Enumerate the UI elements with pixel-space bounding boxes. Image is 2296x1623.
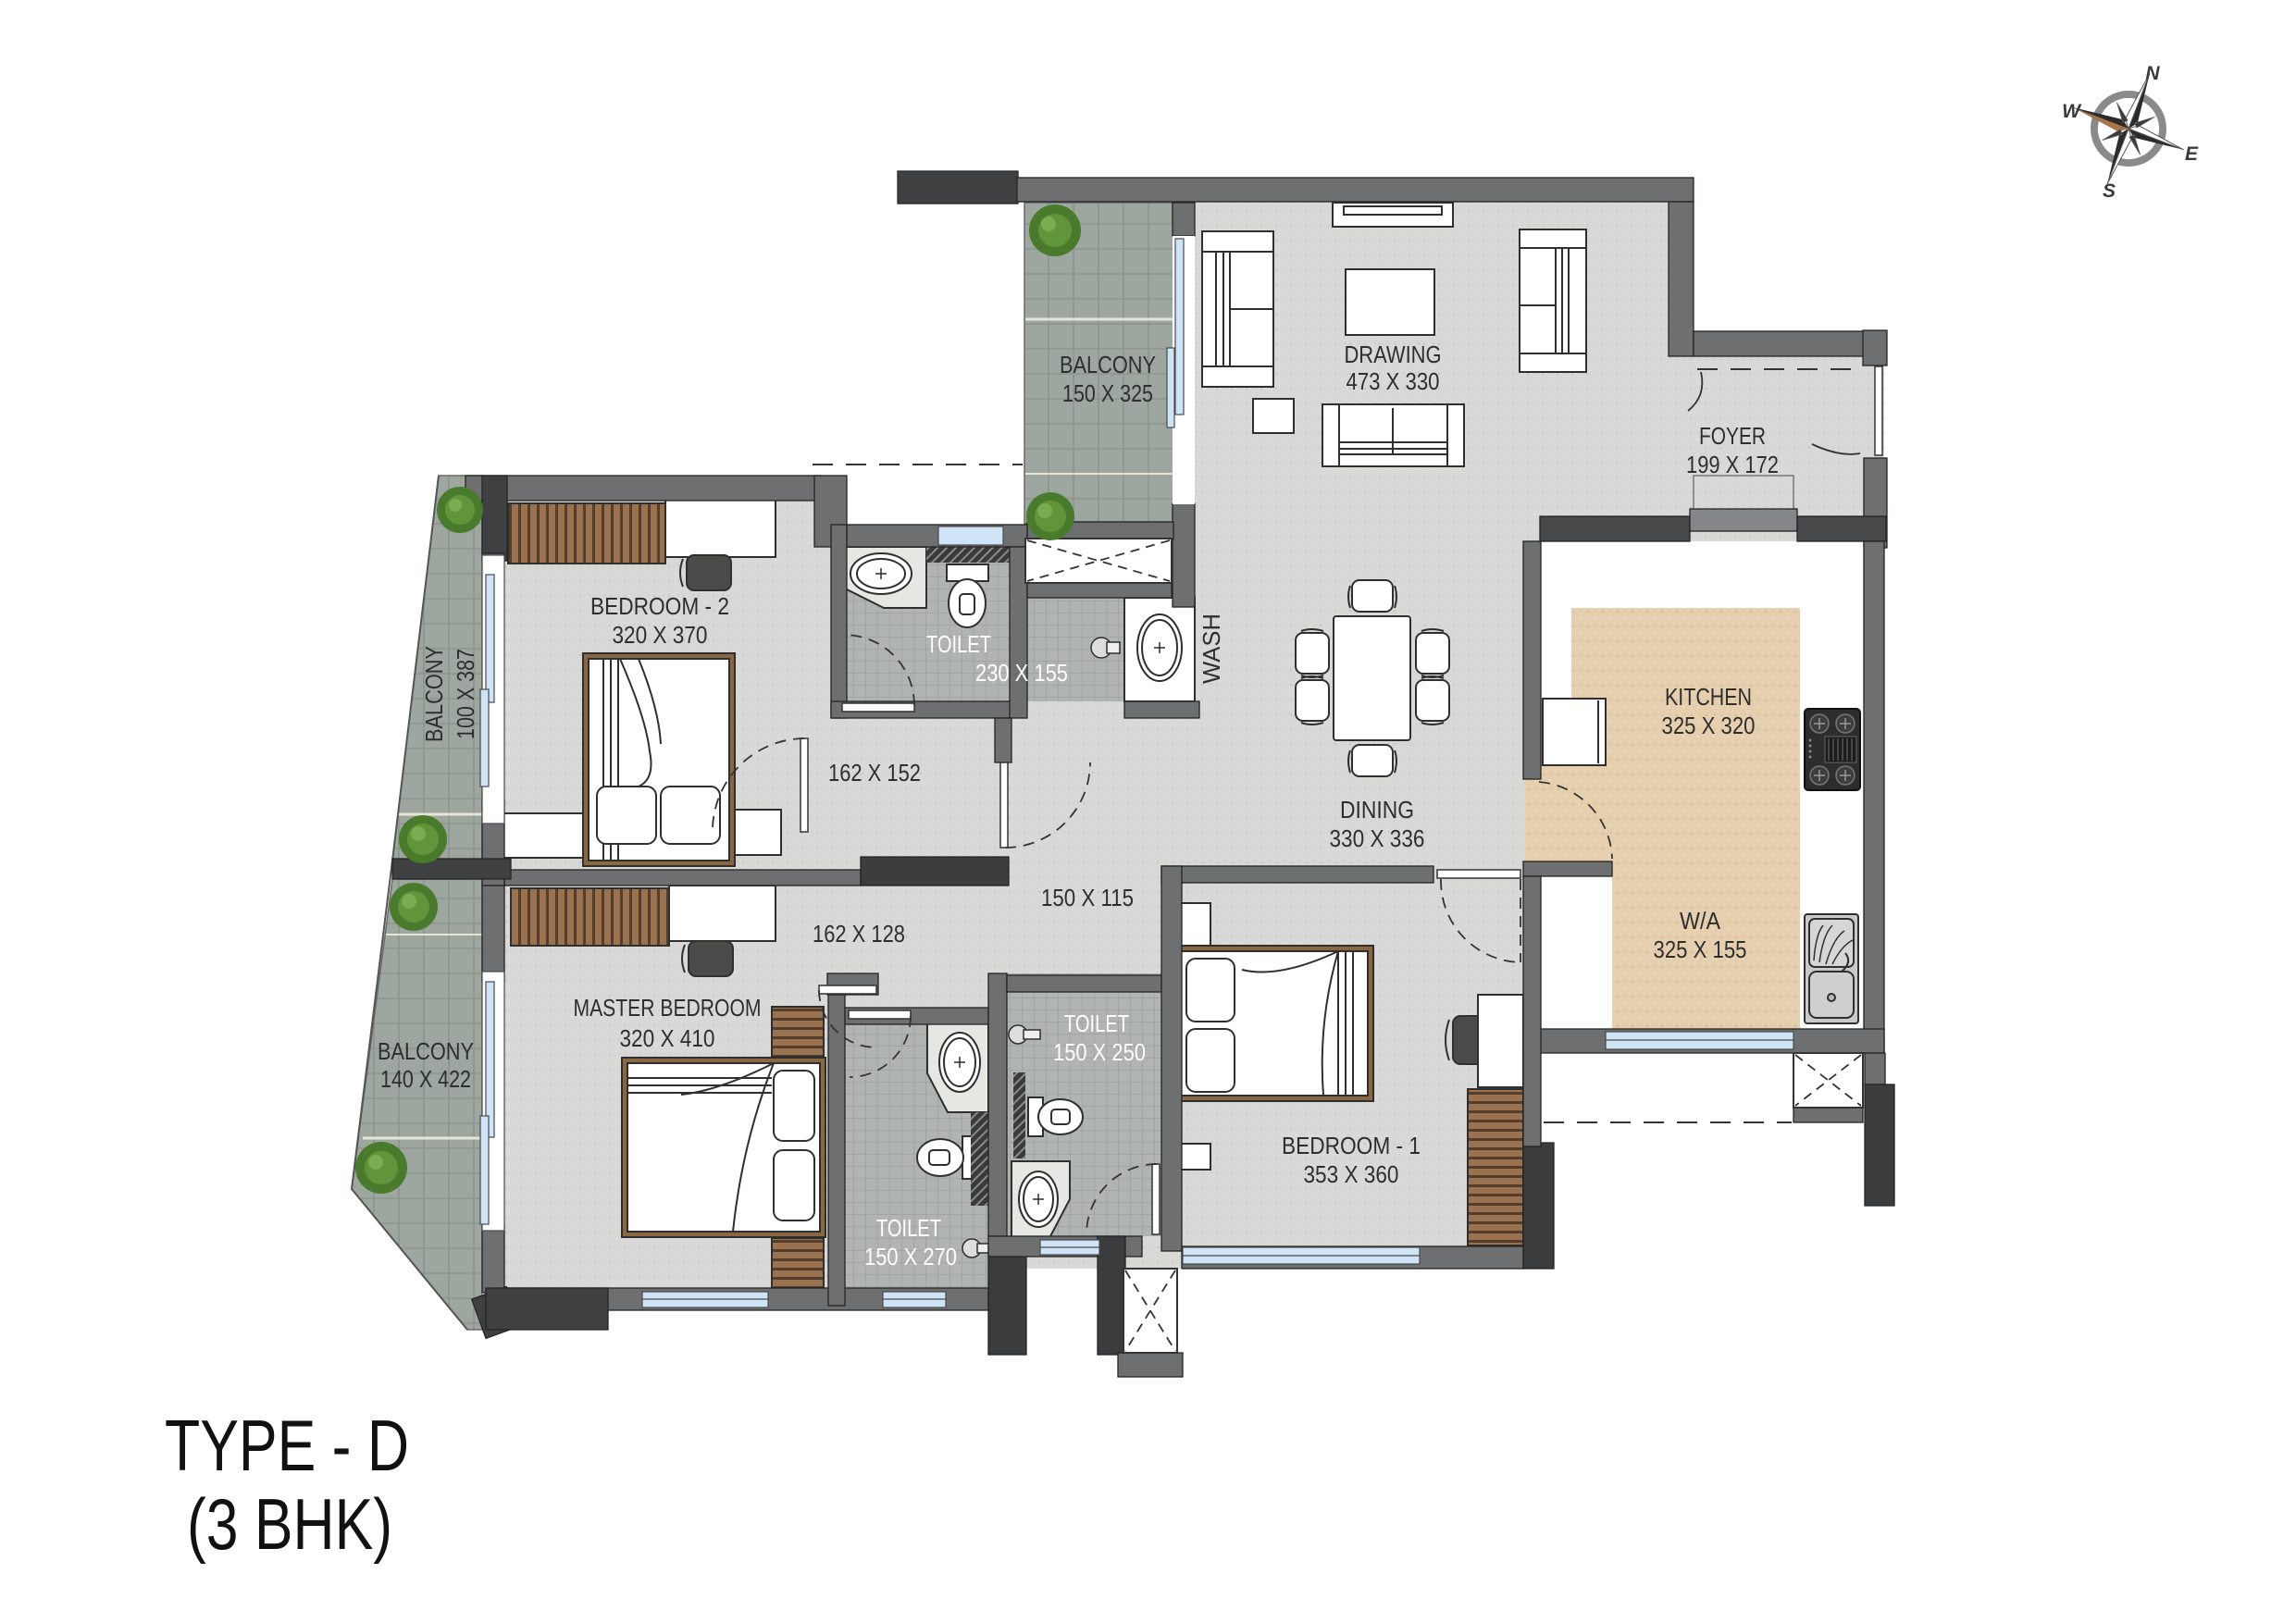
svg-text:473 X 330: 473 X 330 [1347,367,1440,395]
svg-text:TYPE - D: TYPE - D [165,1405,409,1486]
svg-text:BALCONY: BALCONY [1060,351,1156,378]
svg-text:325 X 155: 325 X 155 [1654,935,1747,963]
svg-text:W: W [2062,101,2082,122]
svg-text:BALCONY: BALCONY [420,646,448,742]
svg-text:320 X 370: 320 X 370 [613,621,708,649]
svg-text:BEDROOM - 2: BEDROOM - 2 [590,592,729,620]
svg-text:S: S [2103,180,2116,202]
svg-text:162 X 128: 162 X 128 [813,920,905,948]
svg-text:230 X 155: 230 X 155 [975,659,1068,687]
svg-text:162 X 152: 162 X 152 [828,759,921,787]
svg-text:150 X 115: 150 X 115 [1041,884,1134,911]
svg-text:TOILET: TOILET [876,1214,941,1242]
svg-text:199 X 172: 199 X 172 [1686,451,1779,478]
svg-text:E: E [2185,143,2199,165]
svg-text:353 X 360: 353 X 360 [1304,1160,1399,1188]
svg-text:(3 BHK): (3 BHK) [187,1483,392,1565]
svg-text:320 X 410: 320 X 410 [620,1024,715,1052]
svg-text:150 X 250: 150 X 250 [1053,1038,1146,1066]
svg-text:MASTER BEDROOM: MASTER BEDROOM [574,994,762,1022]
svg-text:KITCHEN: KITCHEN [1665,683,1752,711]
svg-text:140 X 422: 140 X 422 [380,1065,471,1093]
svg-text:W/A: W/A [1680,907,1721,935]
svg-text:150 X 270: 150 X 270 [864,1243,957,1270]
svg-text:325 X 320: 325 X 320 [1662,712,1756,739]
svg-text:TOILET: TOILET [1064,1010,1129,1037]
svg-text:WASH: WASH [1198,613,1225,684]
svg-text:N: N [2145,63,2160,84]
svg-text:150 X 325: 150 X 325 [1062,379,1153,407]
svg-text:TOILET: TOILET [926,630,991,658]
svg-text:BALCONY: BALCONY [378,1037,474,1065]
svg-text:DINING: DINING [1340,796,1414,824]
svg-text:BEDROOM - 1: BEDROOM - 1 [1282,1132,1421,1159]
svg-text:100 X 387: 100 X 387 [452,649,479,739]
svg-text:DRAWING: DRAWING [1345,341,1442,368]
svg-text:330 X 336: 330 X 336 [1330,824,1425,852]
svg-text:FOYER: FOYER [1699,422,1766,450]
